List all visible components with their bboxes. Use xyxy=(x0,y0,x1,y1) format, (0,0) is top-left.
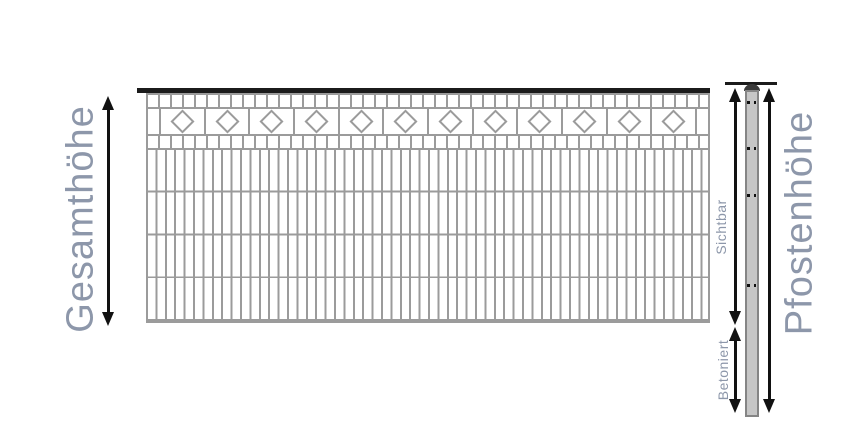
ornament-section xyxy=(608,109,653,134)
fence-mesh-body xyxy=(148,150,708,321)
arrow-up-icon xyxy=(763,88,775,102)
arrow-up-icon xyxy=(729,327,741,341)
arrow-up-icon xyxy=(729,88,741,102)
diamond-ornament-icon xyxy=(349,109,373,133)
ornament-section xyxy=(518,109,563,134)
arrow-shaft xyxy=(734,341,737,399)
fence-panel xyxy=(146,93,710,323)
diamond-ornament-icon xyxy=(483,109,507,133)
diamond-ornament-icon xyxy=(260,109,284,133)
arrow-shaft xyxy=(107,110,110,312)
diamond-ornament-icon xyxy=(438,109,462,133)
arrow-down-icon xyxy=(763,399,775,413)
arrow-shaft xyxy=(734,102,737,311)
arrow-up-icon xyxy=(102,96,114,110)
diamond-ornament-icon xyxy=(394,109,418,133)
ornament-row xyxy=(148,109,708,134)
ornament-edge-cell xyxy=(695,109,708,134)
diamond-ornament-icon xyxy=(572,109,596,133)
diamond-ornament-icon xyxy=(170,109,194,133)
ornament-section xyxy=(206,109,251,134)
post-mounting-holes xyxy=(747,284,756,287)
ornament-edge-cell xyxy=(148,109,161,134)
ornament-section xyxy=(384,109,429,134)
diamond-ornament-icon xyxy=(304,109,328,133)
post-mounting-holes xyxy=(747,101,756,104)
diagram-stage: Gesamthöhe Sichtbar Betoniert xyxy=(0,0,850,425)
arrow-down-icon xyxy=(729,311,741,325)
fence-post xyxy=(745,90,759,417)
ornament-section xyxy=(563,109,608,134)
ornament-section xyxy=(295,109,340,134)
total-height-label: Gesamthöhe xyxy=(60,105,103,333)
diamond-ornament-icon xyxy=(617,109,641,133)
arrow-down-icon xyxy=(729,399,741,413)
diamond-ornament-icon xyxy=(662,109,686,133)
ornament-section xyxy=(340,109,385,134)
ornament-section xyxy=(429,109,474,134)
visible-height-dimension-arrow xyxy=(729,88,741,325)
arrow-down-icon xyxy=(102,312,114,326)
fence-square-row-bottom xyxy=(148,136,708,148)
concreted-depth-dimension-arrow xyxy=(729,327,741,413)
post-height-label: Pfostenhöhe xyxy=(779,111,822,335)
ornament-section xyxy=(161,109,206,134)
arrow-shaft xyxy=(768,102,771,399)
post-height-dimension-arrow xyxy=(763,88,775,413)
ornament-section xyxy=(652,109,695,134)
visible-height-label: Sichtbar xyxy=(713,199,729,254)
post-mounting-holes xyxy=(747,147,756,150)
ornament-section xyxy=(250,109,295,134)
diamond-ornament-icon xyxy=(215,109,239,133)
post-mounting-holes xyxy=(747,194,756,197)
ornament-sections xyxy=(161,109,695,134)
diamond-ornament-icon xyxy=(528,109,552,133)
ornament-section xyxy=(474,109,519,134)
fence-square-row-top xyxy=(148,95,708,107)
total-height-dimension-arrow xyxy=(102,96,114,326)
